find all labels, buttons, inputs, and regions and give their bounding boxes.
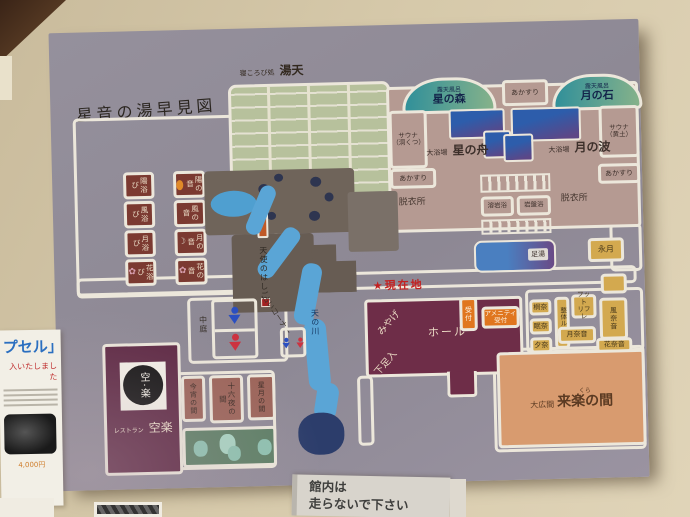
kazanane-room: 風奈音 bbox=[599, 297, 628, 340]
guestroom-garden bbox=[182, 426, 277, 468]
garden-stone bbox=[228, 446, 241, 461]
foot-label-2: リフレ bbox=[574, 306, 593, 321]
garden-stone bbox=[219, 434, 235, 454]
kuraku-label: 来楽の間 bbox=[557, 394, 613, 409]
yoganyoku-label: 溶岩浴 bbox=[488, 202, 508, 210]
womens-toilet-icon bbox=[296, 337, 304, 348]
poster-text-line bbox=[3, 389, 57, 392]
ashiyu-label: 足湯 bbox=[528, 248, 548, 260]
womens-toilet-icon bbox=[229, 334, 241, 351]
family-bath-kazenone: 風の音 bbox=[174, 199, 207, 227]
room-label: 星月の間 bbox=[257, 381, 266, 413]
akasuri-label: あかすり bbox=[511, 88, 539, 97]
river-segment bbox=[303, 318, 332, 392]
datsuijo-right-label: 脱衣所 bbox=[560, 190, 587, 204]
eigetsu-room: 永月 bbox=[588, 237, 625, 262]
restaurant-logo-frame: 空・楽 bbox=[120, 362, 167, 411]
poster-text-line bbox=[4, 394, 58, 397]
wall-sign-edge bbox=[450, 479, 466, 517]
family-bath-tsukiabi: 月浴び bbox=[124, 230, 156, 258]
uketsuke-label: 受付 bbox=[464, 306, 472, 322]
room-label: 陽浴び bbox=[130, 175, 148, 196]
room-koyoi: 今宵の間 bbox=[181, 376, 206, 423]
river-pond bbox=[298, 412, 345, 455]
amanogawa-label: 天の川 bbox=[309, 309, 321, 336]
yoganyoku-room: 溶岩浴 bbox=[481, 196, 514, 217]
wall-photo-fragment bbox=[94, 502, 162, 517]
restaurant-caption: レストラン 空楽 bbox=[107, 417, 179, 437]
poster-price: 4,000円 bbox=[5, 460, 59, 471]
room-label: 月浴び bbox=[131, 233, 149, 254]
logo-char-mid: ・ bbox=[140, 382, 147, 388]
datsuijo-left-label: 脱衣所 bbox=[399, 194, 426, 208]
foot-refle-room: フット リフレ bbox=[571, 294, 597, 319]
locker-grid-top bbox=[480, 173, 550, 193]
booth-label: 眠奈 bbox=[534, 322, 548, 330]
room-label: 花の音 bbox=[186, 261, 204, 282]
family-bath-hinone: 陽の音 bbox=[173, 170, 206, 198]
room-hoshizuki: 星月の間 bbox=[247, 374, 276, 421]
hananane-label: 花奈音 bbox=[604, 341, 625, 350]
ganbanyoku-label: 岩盤浴 bbox=[524, 201, 544, 209]
akasuri-right: あかすり bbox=[598, 163, 640, 184]
central-building-east bbox=[347, 191, 398, 252]
hall-area-south bbox=[447, 371, 478, 398]
tsukinonami-pool-lower bbox=[503, 133, 534, 162]
room-label: 今宵の間 bbox=[189, 383, 198, 415]
sun-icon bbox=[176, 180, 183, 190]
restaurant-kuraku: 空・楽 レストラン 空楽 bbox=[102, 342, 183, 476]
room-label: 花浴び bbox=[136, 262, 154, 283]
corridor-courtyard-block bbox=[187, 296, 289, 364]
poster-text-line bbox=[4, 404, 58, 407]
no-running-sign: 館内は 走らないで下さい bbox=[292, 474, 451, 517]
akasuri-label: あかすり bbox=[399, 174, 427, 183]
capsule-poster: プセル」 入いたしました 4,000円 bbox=[0, 329, 64, 506]
ganbanyoku-room: 岩盤浴 bbox=[517, 195, 551, 216]
yuten-prefix-label: 寝ころび処 bbox=[239, 69, 274, 78]
mens-toilet-icon bbox=[228, 307, 240, 324]
nakaniwa-label: 中庭 bbox=[197, 315, 208, 333]
family-bath-kazaabi: 風浴び bbox=[124, 201, 156, 229]
daiyokujo-prefix: 大浴場 bbox=[548, 146, 569, 155]
toilet-block bbox=[211, 298, 258, 359]
garden-stone bbox=[257, 439, 271, 455]
akasuri-top: あかすり bbox=[502, 79, 549, 106]
family-bath-tsukinone: ☽ 月の音 bbox=[174, 228, 207, 256]
poster-title-fragment: プセル」 bbox=[3, 336, 57, 358]
foot-label-1: フット bbox=[574, 291, 593, 306]
wall-photo-fragment bbox=[0, 498, 54, 517]
uranai-corner-label: 占いコーナー bbox=[260, 293, 308, 357]
family-bath-hiabi: 陽浴び bbox=[123, 172, 155, 200]
garden-stone bbox=[193, 441, 207, 457]
akasuri-label: あかすり bbox=[605, 169, 633, 178]
oohiroma-kuraku: 大広間 くら 来楽の間 bbox=[496, 349, 646, 449]
photo-of-facility-map: 星音の湯早見図 寝ころび処 湯天 露天風呂 星の森 あかすり 露天風 bbox=[0, 0, 690, 517]
room-izayoi: 十六夜の間 bbox=[209, 375, 244, 424]
amenity-label-2: 受付 bbox=[494, 317, 507, 325]
oohiroma-prefix: 大広間 bbox=[530, 400, 554, 410]
restaurant-logo-circle: 空・楽 bbox=[123, 365, 164, 406]
hoshinomori-label: 星の森 bbox=[433, 93, 466, 105]
map-board: 星音の湯早見図 寝ころび処 湯天 露天風呂 星の森 あかすり 露天風 bbox=[48, 19, 649, 491]
akasuri-left: あかすり bbox=[390, 168, 436, 189]
daiyokujo-prefix: 大浴場 bbox=[426, 149, 447, 158]
amenity-counter: アメニティ 受付 bbox=[481, 306, 520, 329]
uketsuke-counter: 受付 bbox=[459, 297, 478, 331]
room-label: 十六夜の間 bbox=[217, 378, 235, 420]
room-label: 風の音 bbox=[181, 203, 199, 224]
booth-label: 桐奈 bbox=[533, 303, 547, 311]
logo-char-top: 空 bbox=[138, 372, 149, 382]
yuten-name-label: 湯天 bbox=[279, 63, 303, 78]
booth-label: 夕奈 bbox=[534, 341, 548, 349]
current-location-marker: ★現在地 bbox=[373, 276, 424, 293]
restaurant-name: 空楽 bbox=[149, 420, 173, 435]
poster-text-line bbox=[4, 399, 58, 402]
corridor-guestroom-block bbox=[175, 370, 277, 470]
family-bath-hanaabi: ✿ 花浴び bbox=[125, 259, 157, 287]
sign-line-2: 走らないで下さい bbox=[309, 496, 450, 516]
hoshinofune-caption: 大浴場 星の舟 bbox=[417, 138, 497, 159]
tsukinoishi-label: 月の石 bbox=[581, 89, 614, 101]
tsukinonami-label: 月の波 bbox=[574, 140, 610, 155]
kazanane-label: 風奈音 bbox=[609, 306, 618, 330]
logo-char-bottom: 楽 bbox=[138, 388, 149, 398]
poster-photo bbox=[4, 414, 57, 455]
hoshinofune-label: 星の舟 bbox=[452, 143, 488, 158]
booth-kiri: 桐奈 bbox=[529, 299, 551, 316]
tsukinane-label: 月奈音 bbox=[566, 331, 587, 340]
room-label: 陽の音 bbox=[185, 174, 203, 195]
relax-room-spare bbox=[601, 273, 627, 294]
family-bath-hananone: ✿ 花の音 bbox=[175, 257, 208, 285]
ashiyu-footbath: 足湯 bbox=[474, 239, 557, 273]
yuten-caption: 寝ころび処 湯天 bbox=[239, 59, 304, 80]
room-label: 月の音 bbox=[186, 232, 204, 253]
toilet-divider bbox=[215, 328, 255, 332]
corridor-hall-south bbox=[357, 375, 375, 445]
restaurant-prefix: レストラン bbox=[114, 427, 144, 435]
wall-paper-sliver bbox=[0, 56, 12, 100]
photo-content bbox=[97, 505, 159, 514]
family-toilet-block bbox=[280, 327, 307, 358]
eigetsu-label: 永月 bbox=[598, 245, 614, 255]
mens-toilet-icon bbox=[282, 337, 290, 348]
poster-subtitle-fragment: 入いたしました bbox=[3, 361, 57, 384]
moon-icon: ☽ bbox=[178, 237, 186, 248]
booth-min: 眠奈 bbox=[530, 318, 552, 335]
room-label: 風浴び bbox=[131, 204, 149, 225]
tsukinonami-caption: 大浴場 月の波 bbox=[539, 135, 619, 156]
tsukinane-room: 月奈音 bbox=[558, 326, 596, 344]
locker-grid-bottom bbox=[481, 218, 551, 235]
